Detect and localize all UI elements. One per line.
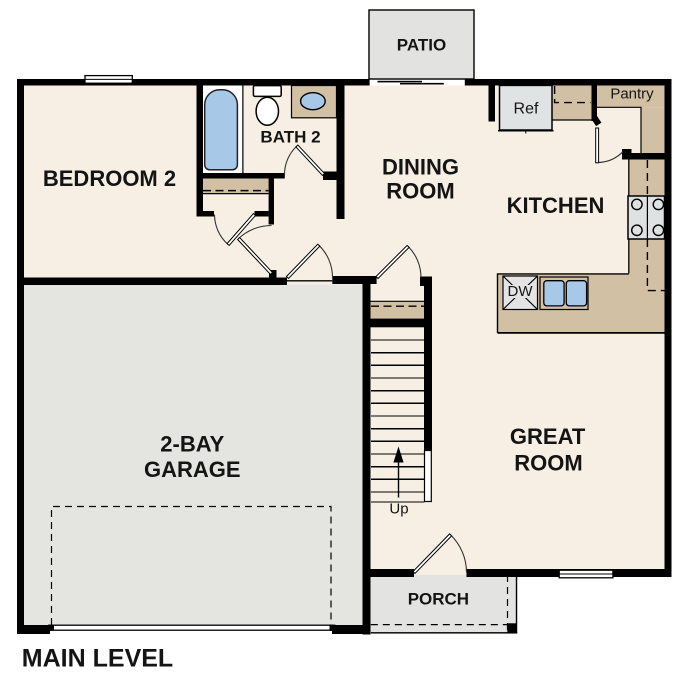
svg-text:KITCHEN: KITCHEN	[507, 193, 605, 218]
svg-text:2-BAY: 2-BAY	[160, 432, 224, 457]
svg-text:Ref: Ref	[514, 100, 539, 117]
svg-text:PATIO: PATIO	[397, 36, 446, 55]
svg-text:ROOM: ROOM	[386, 179, 454, 204]
svg-text:GARAGE: GARAGE	[144, 457, 241, 482]
svg-text:ROOM: ROOM	[514, 450, 582, 475]
svg-text:DINING: DINING	[382, 155, 459, 180]
svg-text:PORCH: PORCH	[408, 590, 469, 609]
svg-text:DW: DW	[508, 283, 534, 300]
svg-text:BATH 2: BATH 2	[260, 128, 320, 147]
svg-text:BEDROOM 2: BEDROOM 2	[43, 166, 176, 191]
svg-text:MAIN LEVEL: MAIN LEVEL	[22, 645, 173, 673]
svg-text:Up: Up	[389, 501, 408, 518]
svg-text:Pantry: Pantry	[610, 86, 654, 103]
svg-text:GREAT: GREAT	[510, 424, 586, 449]
